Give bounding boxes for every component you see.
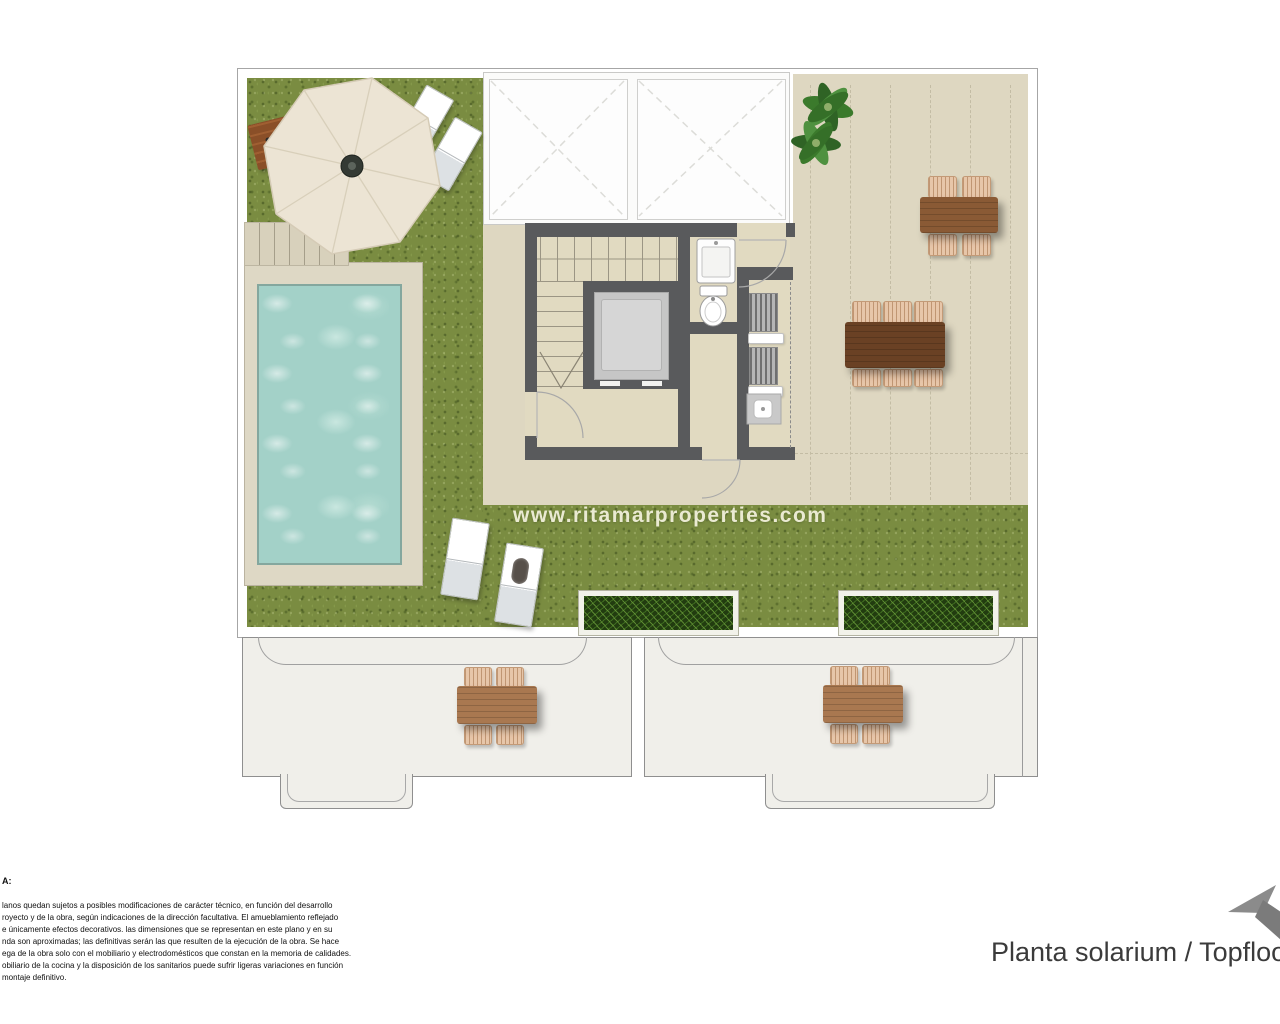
chair-icon: [962, 176, 991, 198]
disclaimer-line: royecto y de la obra, según indicaciones…: [2, 912, 351, 924]
dining-table-4-icon: [457, 686, 537, 724]
note-label: A:: [2, 876, 12, 886]
elevator-door: [600, 381, 620, 386]
terrace-overhang-line: [258, 637, 587, 665]
disclaimer-line: ega de la obra solo con el mobiliario y …: [2, 948, 351, 960]
tile-joint: [810, 85, 811, 500]
stairs-icon: [540, 237, 678, 281]
tile-joint: [1010, 85, 1011, 500]
tile-joint: [890, 85, 891, 500]
dining-table-6-icon: [845, 322, 945, 368]
planter-icon: [838, 590, 999, 636]
elevator-icon: [583, 281, 594, 389]
planter-icon: [578, 590, 739, 636]
elevator-car-panel: [601, 299, 662, 371]
wall: [525, 223, 737, 237]
chair-icon: [914, 369, 943, 387]
chair-icon: [830, 666, 858, 686]
wall: [737, 267, 793, 280]
page-title: Planta solarium / Topfloor: [991, 937, 1280, 968]
chair-icon: [830, 724, 858, 744]
disclaimer-line: montaje definitivo.: [2, 972, 351, 984]
chair-icon: [914, 301, 943, 323]
disclaimer-line: obiliario de la cocina y la disposición …: [2, 960, 351, 972]
tile-joint: [850, 85, 851, 500]
skylight-icon: [489, 79, 628, 220]
disclaimer-line: lanos quedan sujetos a posibles modifica…: [2, 900, 351, 912]
terrace-notch-line: [772, 774, 988, 802]
wall: [737, 280, 749, 460]
wall: [786, 223, 795, 237]
chair-icon: [928, 176, 957, 198]
chair-icon: [464, 667, 492, 687]
terrace-double-wall: [1022, 637, 1023, 777]
chair-icon: [852, 369, 881, 387]
wall: [690, 322, 737, 334]
floor-plan-page: www.ritamarproperties.com: [0, 0, 1280, 1024]
shelf-icon: [748, 333, 784, 344]
louver-unit-icon: [749, 347, 778, 385]
chair-icon: [464, 725, 492, 745]
elevator-icon: [583, 281, 678, 292]
disclaimer-line: e únicamente efectos decorativos. las di…: [2, 924, 351, 936]
wall: [678, 237, 690, 460]
tile-joint: [930, 85, 931, 500]
disclaimer-line: nda son aproximadas; las definitivas ser…: [2, 936, 351, 948]
terrace-notch-line: [287, 774, 406, 802]
louver-unit-icon: [749, 293, 778, 332]
chair-icon: [883, 301, 912, 323]
closet-open-edge: [790, 282, 791, 448]
chair-icon: [496, 667, 524, 687]
dining-table-4-icon: [920, 197, 998, 233]
garden-steps: [244, 222, 349, 266]
swimming-pool-icon: [257, 284, 402, 565]
shelf-icon: [748, 386, 783, 397]
logo-arrow-icon: [1228, 885, 1280, 940]
dining-table-4-icon: [823, 685, 903, 723]
chair-icon: [862, 724, 890, 744]
chair-icon: [928, 234, 957, 256]
chair-icon: [496, 725, 524, 745]
wall: [525, 447, 702, 460]
elevator-door: [642, 381, 662, 386]
chair-icon: [962, 234, 991, 256]
watermark: www.ritamarproperties.com: [513, 504, 827, 528]
wall: [525, 237, 537, 392]
disclaimer-text: lanos quedan sujetos a posibles modifica…: [2, 900, 351, 984]
terrace-overhang-line: [658, 637, 1015, 665]
chair-icon: [862, 666, 890, 686]
skylight-icon: [637, 79, 786, 220]
stairs-icon: [537, 281, 583, 391]
towel-icon: [510, 557, 530, 585]
chair-icon: [883, 369, 912, 387]
chair-icon: [852, 301, 881, 323]
tile-joint: [970, 85, 971, 500]
